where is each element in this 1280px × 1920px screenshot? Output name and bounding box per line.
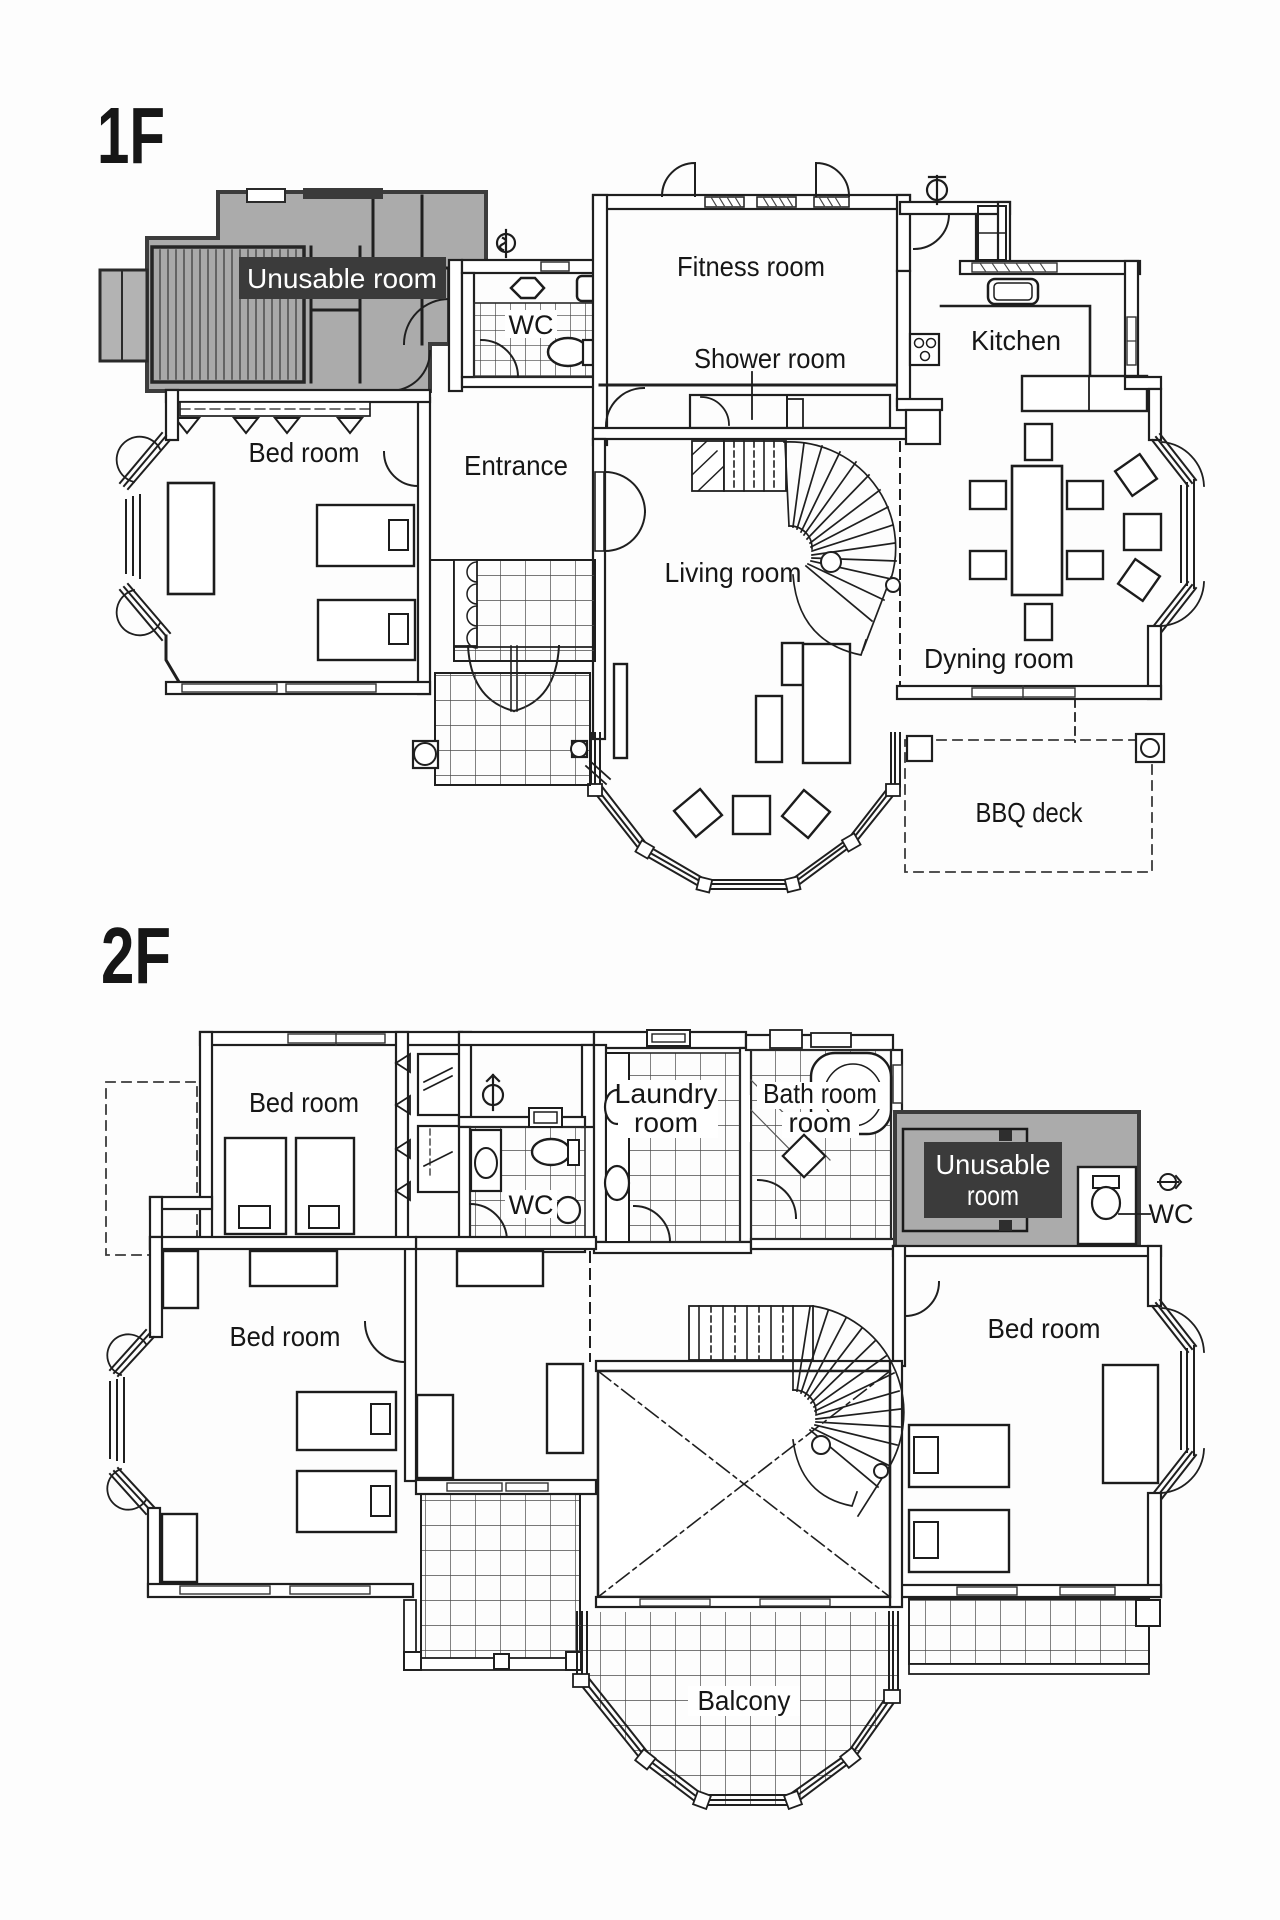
svg-text:Dyning room: Dyning room — [924, 643, 1074, 674]
svg-text:Bath room: Bath room — [763, 1078, 877, 1109]
svg-text:2F: 2F — [101, 911, 171, 1000]
svg-text:room: room — [967, 1180, 1019, 1211]
svg-text:Bed room: Bed room — [230, 1321, 341, 1352]
svg-text:WC: WC — [509, 310, 554, 340]
svg-text:room: room — [634, 1107, 698, 1138]
svg-text:Living room: Living room — [665, 557, 802, 588]
svg-text:Fitness room: Fitness room — [677, 251, 825, 282]
svg-text:WC: WC — [509, 1190, 554, 1220]
svg-text:1F: 1F — [97, 91, 165, 180]
svg-text:Shower room: Shower room — [694, 343, 846, 374]
svg-text:Balcony: Balcony — [698, 1685, 791, 1716]
svg-text:Bed room: Bed room — [988, 1313, 1101, 1344]
svg-text:Unusable room: Unusable room — [247, 263, 437, 294]
svg-text:Bed room: Bed room — [249, 437, 360, 468]
svg-text:BBQ deck: BBQ deck — [976, 797, 1084, 828]
svg-text:Bed room: Bed room — [249, 1087, 359, 1118]
svg-text:Kitchen: Kitchen — [971, 325, 1061, 356]
svg-text:room: room — [789, 1107, 852, 1138]
svg-text:WC: WC — [1149, 1199, 1194, 1229]
svg-text:Laundry: Laundry — [615, 1078, 718, 1109]
svg-text:Unusable: Unusable — [936, 1149, 1051, 1180]
svg-text:Entrance: Entrance — [464, 450, 568, 481]
